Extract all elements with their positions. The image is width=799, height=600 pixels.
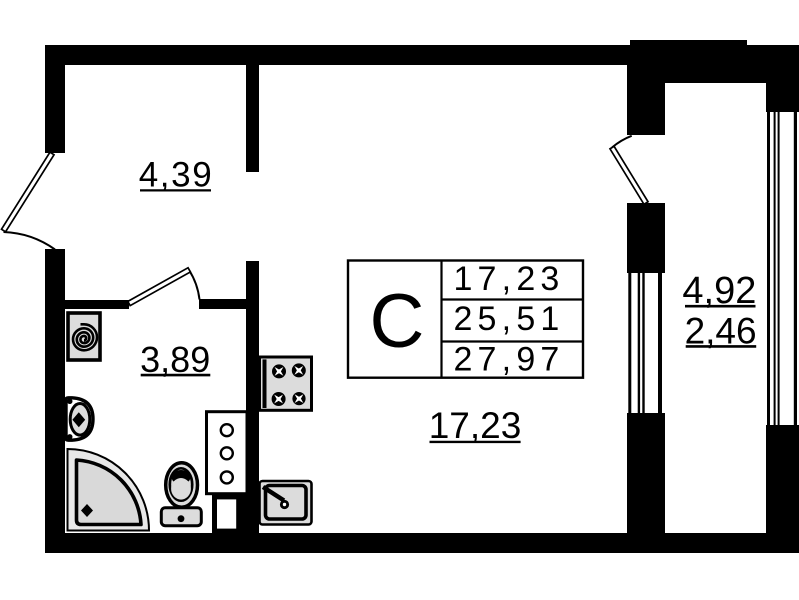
svg-text:17,23: 17,23 [429,405,522,446]
svg-text:27,97: 27,97 [453,341,564,379]
svg-text:25,51: 25,51 [453,300,564,338]
svg-text:17,23: 17,23 [453,260,564,298]
svg-text:4,39: 4,39 [139,155,214,194]
svg-text:3,89: 3,89 [140,339,210,380]
svg-text:С: С [370,279,425,364]
